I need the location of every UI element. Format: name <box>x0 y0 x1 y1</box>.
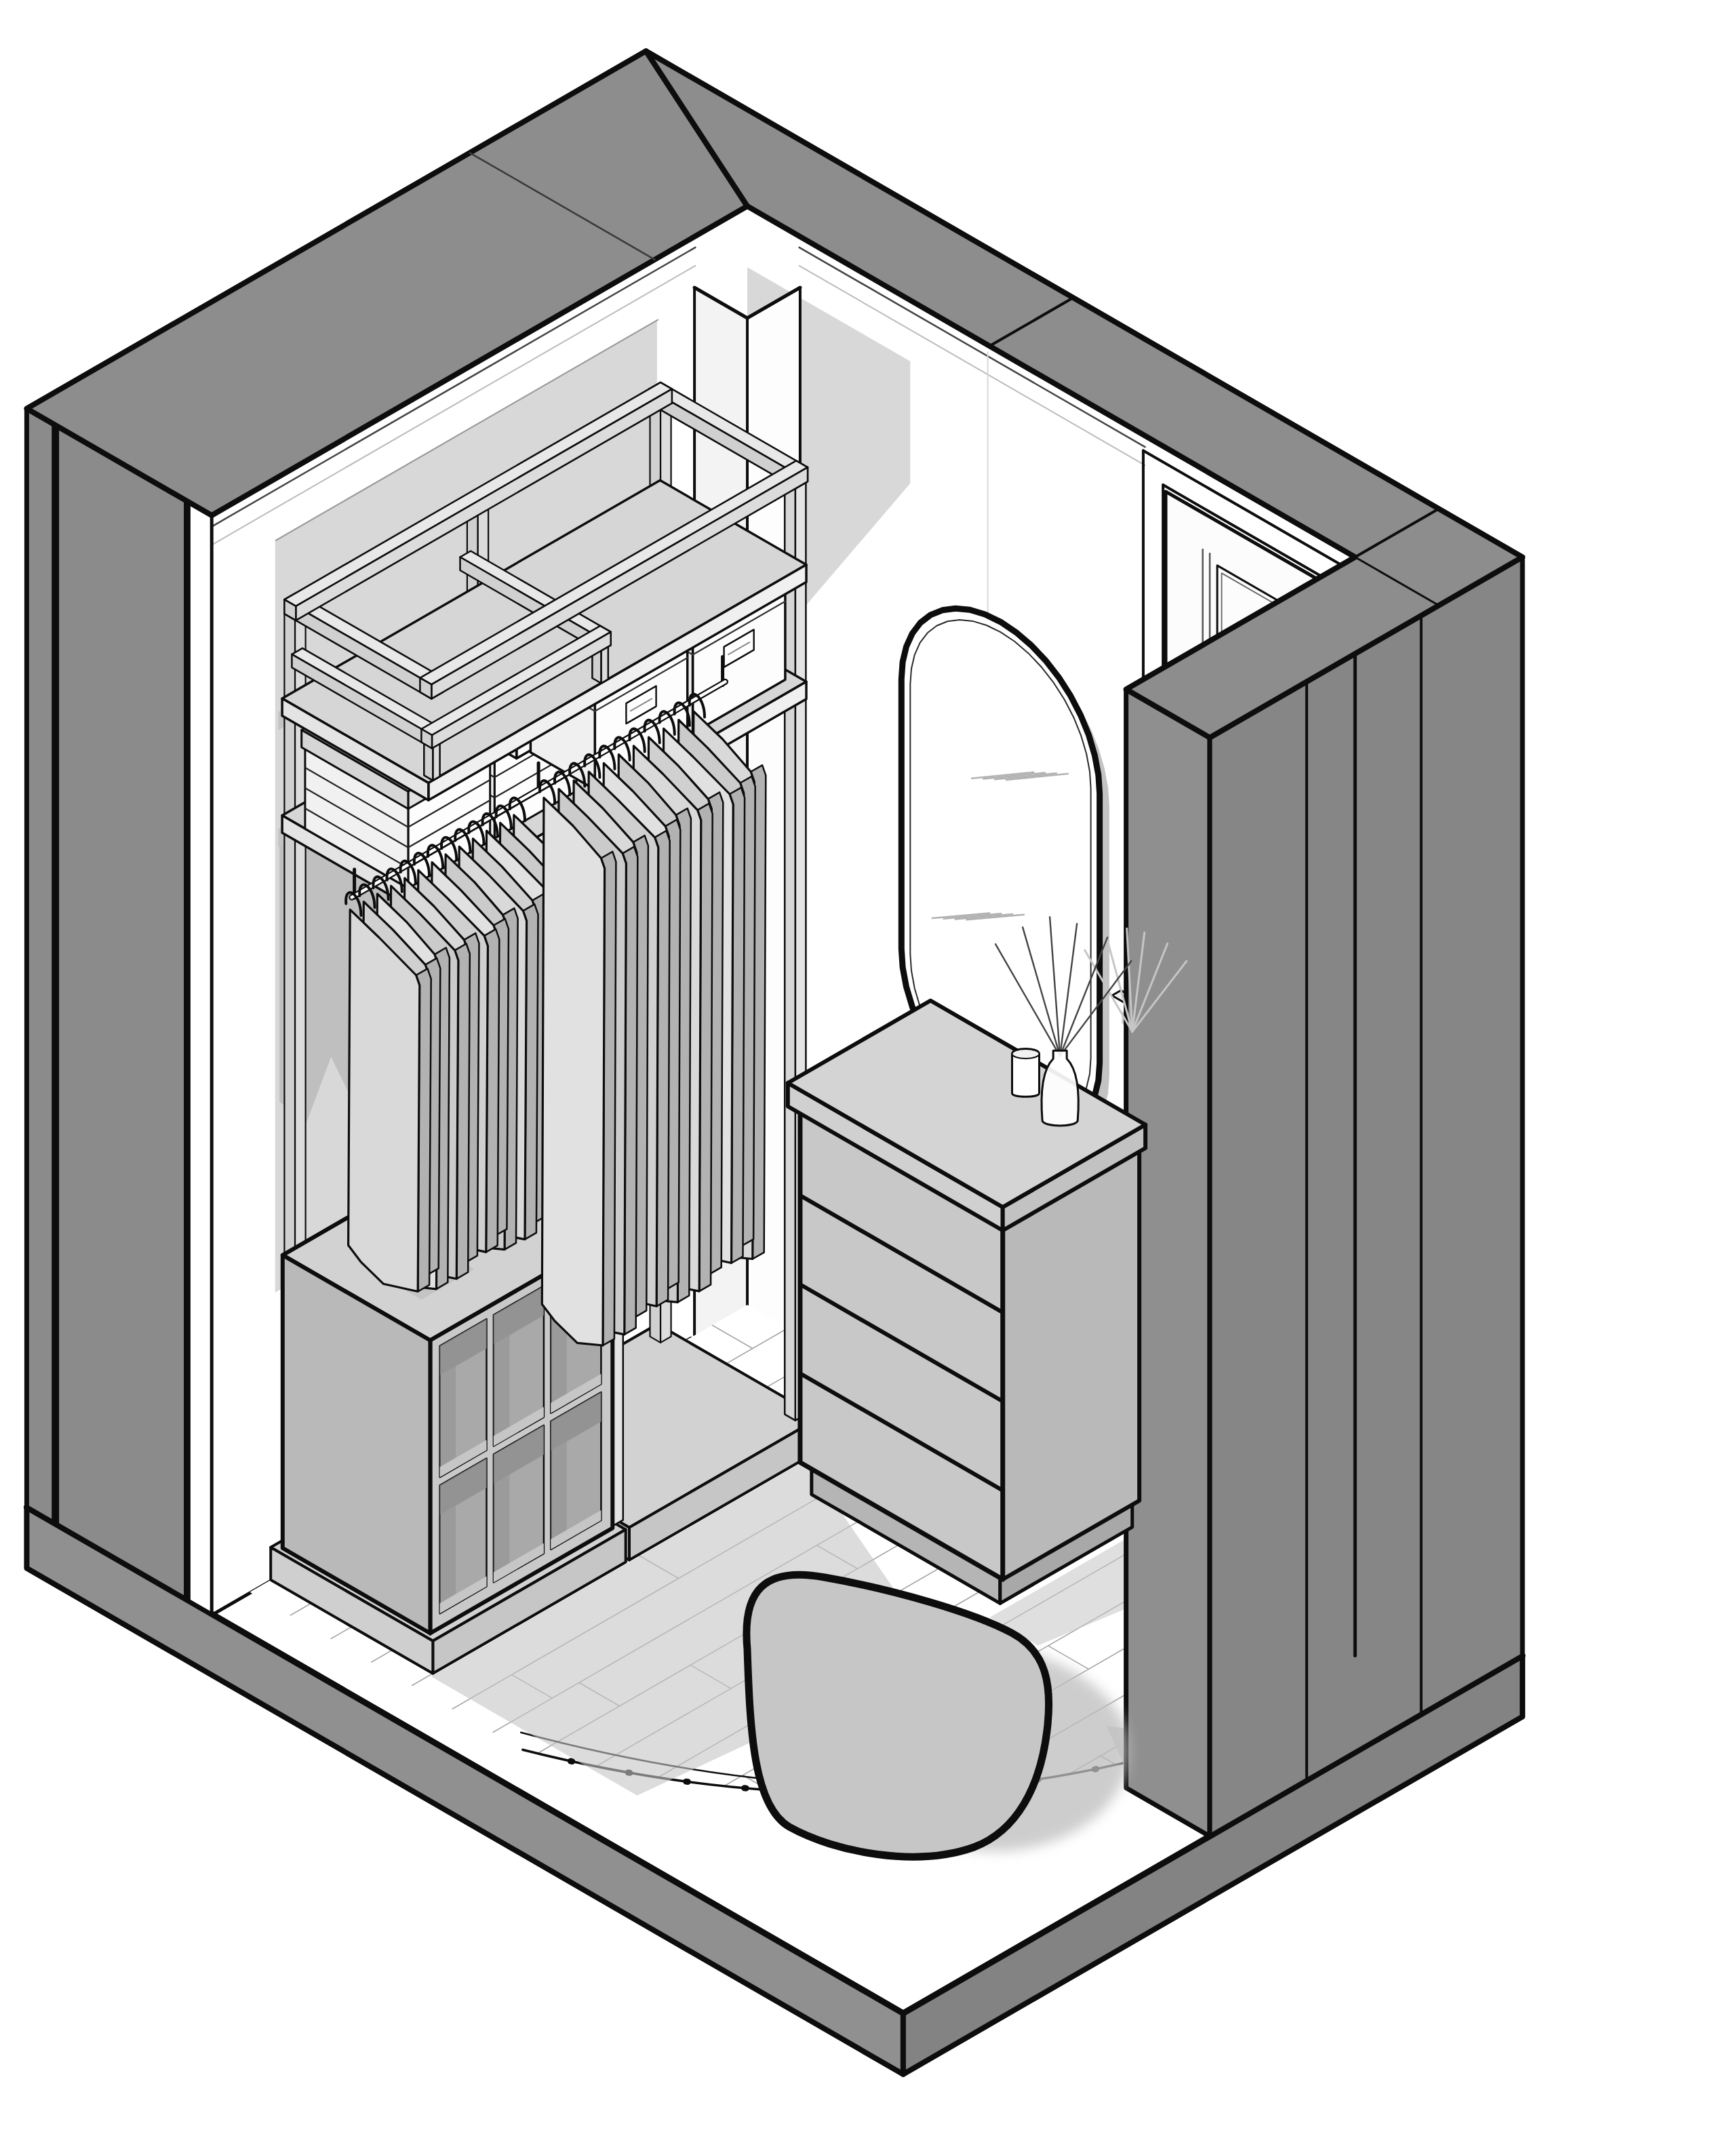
left-wall-cut-finish <box>189 502 212 1615</box>
isometric-room-drawing <box>0 0 1736 2149</box>
raised-rail-post-front <box>433 743 439 781</box>
left-wall-cut-outer <box>26 409 54 1523</box>
garments-long <box>540 694 766 1345</box>
garment <box>542 797 604 1345</box>
plank-joint <box>863 1893 903 1917</box>
scene-canvas <box>0 0 1736 2149</box>
closet <box>271 382 819 1674</box>
left-wall-cut-core <box>57 426 186 1599</box>
plank-joint <box>631 1793 672 1817</box>
garment <box>349 909 420 1291</box>
right-wall-outer-face <box>1210 557 1522 1836</box>
raised-rail-post-front <box>601 646 608 684</box>
candle-top <box>1012 1049 1039 1059</box>
